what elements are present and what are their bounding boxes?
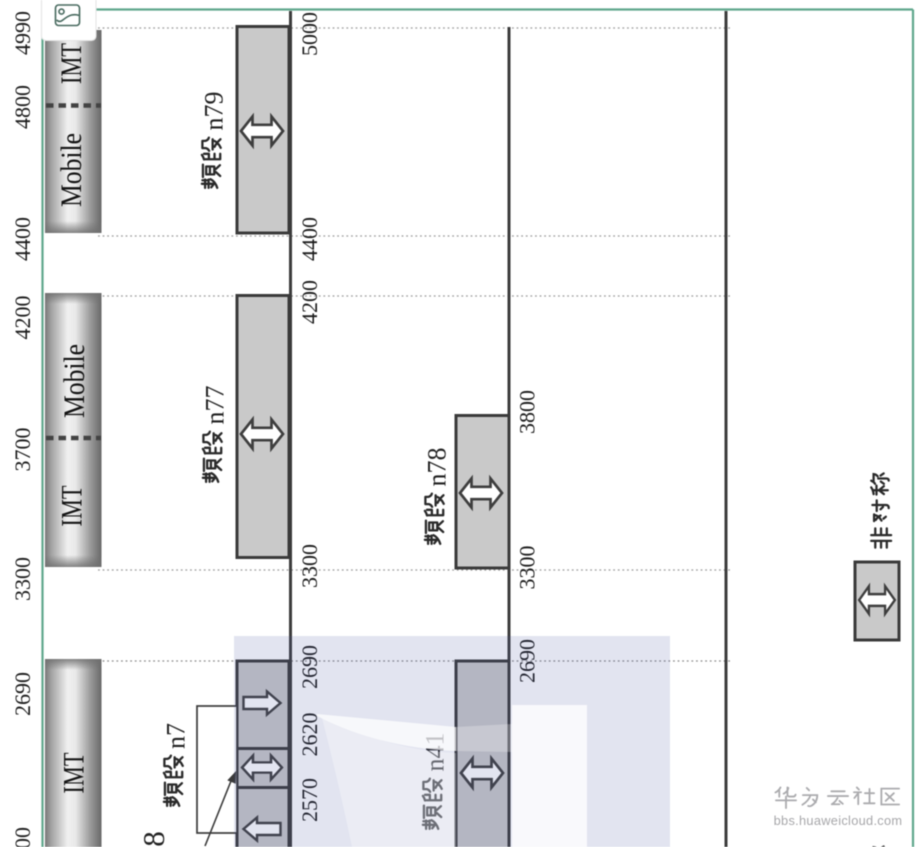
svg-text:n77: n77 (201, 386, 230, 425)
svg-text:4800: 4800 (10, 85, 35, 129)
svg-text:3700: 3700 (10, 428, 35, 472)
svg-text:4400: 4400 (10, 217, 35, 261)
svg-text:4400: 4400 (297, 217, 322, 261)
svg-text:4200: 4200 (10, 296, 35, 340)
svg-text:bbs.huaweicloud.com: bbs.huaweicloud.com (774, 813, 903, 828)
svg-text:Mobile: Mobile (58, 344, 91, 418)
svg-text:8: 8 (136, 831, 171, 847)
svg-text:2690: 2690 (10, 672, 35, 716)
svg-text:IMT: IMT (58, 753, 91, 794)
svg-text:4990: 4990 (10, 11, 35, 55)
svg-text:2500: 2500 (10, 827, 35, 847)
svg-text:IMT: IMT (55, 43, 88, 84)
svg-text:n7: n7 (162, 723, 191, 749)
svg-text:IMT: IMT (56, 486, 89, 527)
svg-text:3800: 3800 (515, 390, 540, 434)
svg-text:3300: 3300 (297, 544, 322, 588)
svg-text:5000: 5000 (297, 12, 322, 56)
svg-text:Mobile: Mobile (55, 133, 88, 207)
svg-text:n79: n79 (200, 92, 229, 131)
svg-text:n78: n78 (423, 448, 452, 487)
svg-text:3300: 3300 (10, 557, 35, 601)
svg-text:3300: 3300 (515, 546, 540, 590)
svg-text:4200: 4200 (297, 280, 322, 324)
